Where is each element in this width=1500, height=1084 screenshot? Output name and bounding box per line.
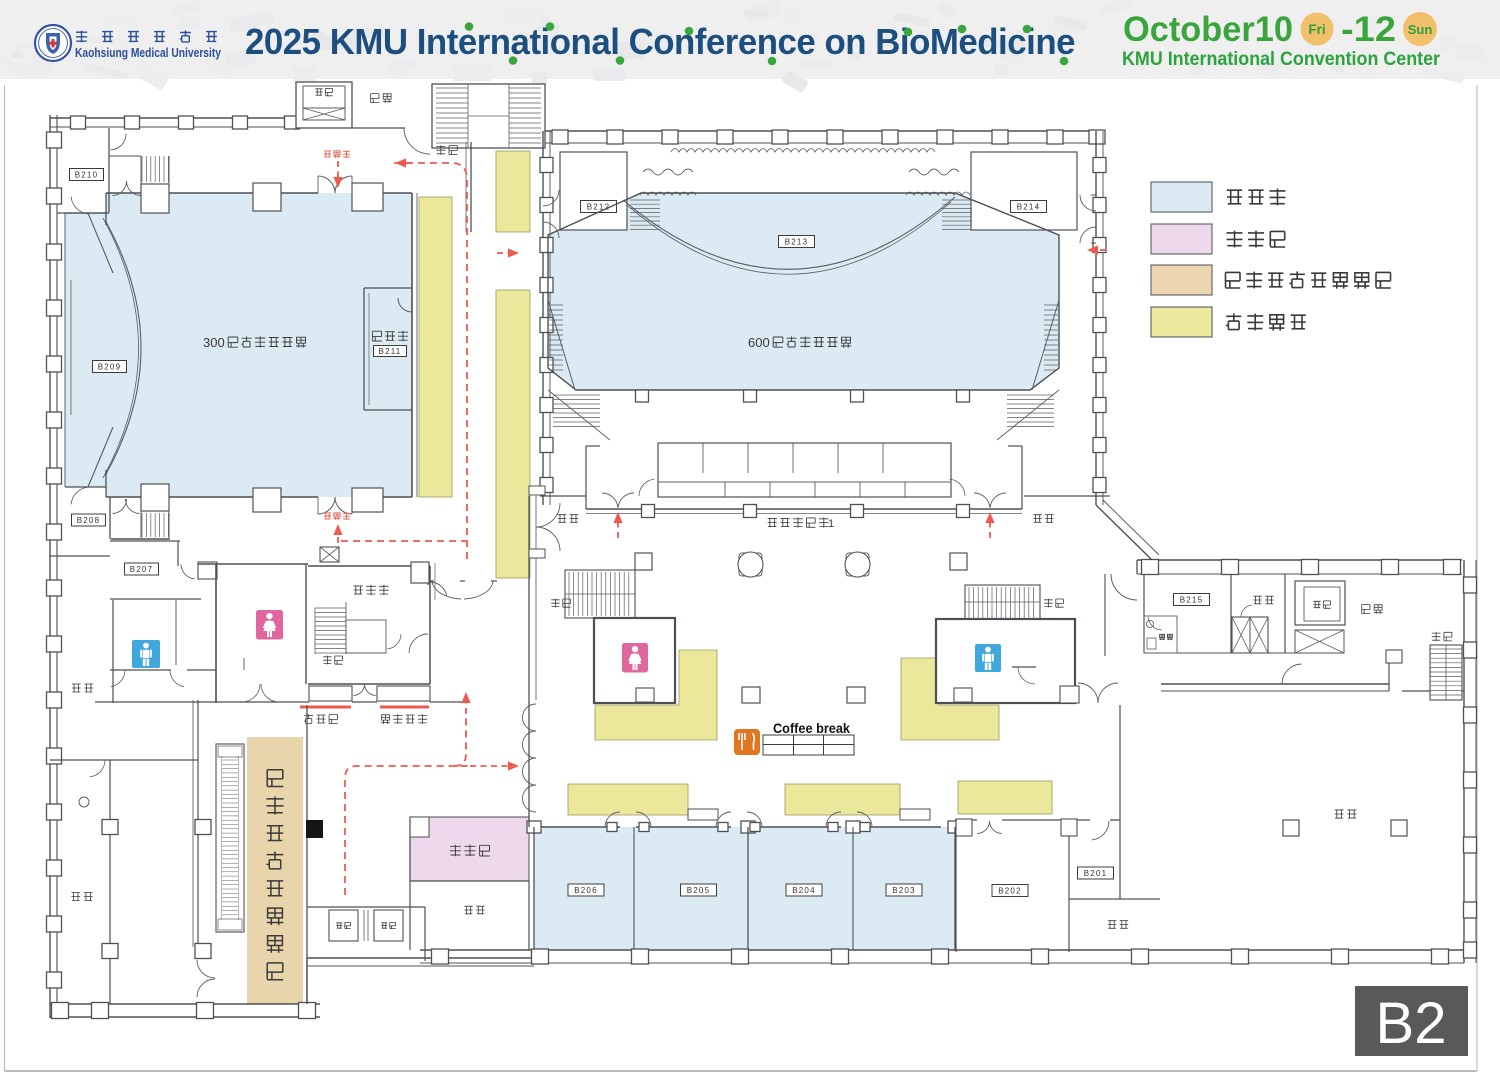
svg-text:B208: B208 (77, 516, 100, 525)
svg-text:B209: B209 (98, 363, 121, 372)
svg-text:2025 KMU International Confere: 2025 KMU International Conference on Bio… (245, 21, 1075, 62)
svg-text:B201: B201 (1084, 869, 1107, 878)
svg-text:B207: B207 (130, 565, 153, 574)
svg-text:B2: B2 (1376, 991, 1447, 1056)
svg-text:300: 300 (203, 335, 225, 350)
svg-text:-12: -12 (1341, 10, 1396, 49)
svg-text:B203: B203 (892, 886, 915, 895)
svg-text:Coffee break: Coffee break (773, 720, 850, 736)
svg-text:600: 600 (748, 335, 770, 350)
svg-text:1: 1 (828, 518, 834, 530)
svg-text:B215: B215 (1180, 596, 1203, 605)
svg-text:B202: B202 (998, 887, 1021, 896)
svg-text:B205: B205 (687, 886, 710, 895)
svg-text:Fri: Fri (1308, 22, 1325, 37)
svg-text:B210: B210 (75, 171, 98, 180)
svg-text:B214: B214 (1017, 203, 1040, 212)
svg-text:B204: B204 (792, 886, 815, 895)
svg-text:Kaohsiung Medical University: Kaohsiung Medical University (75, 46, 221, 60)
svg-text:B206: B206 (574, 886, 597, 895)
svg-text:Sun: Sun (1408, 22, 1433, 37)
svg-text:KMU International Convention C: KMU International Convention Center (1122, 49, 1441, 70)
svg-text:B211: B211 (379, 347, 402, 356)
svg-text:B213: B213 (785, 238, 808, 247)
svg-text:B212: B212 (587, 203, 610, 212)
svg-text:October10: October10 (1123, 10, 1293, 49)
